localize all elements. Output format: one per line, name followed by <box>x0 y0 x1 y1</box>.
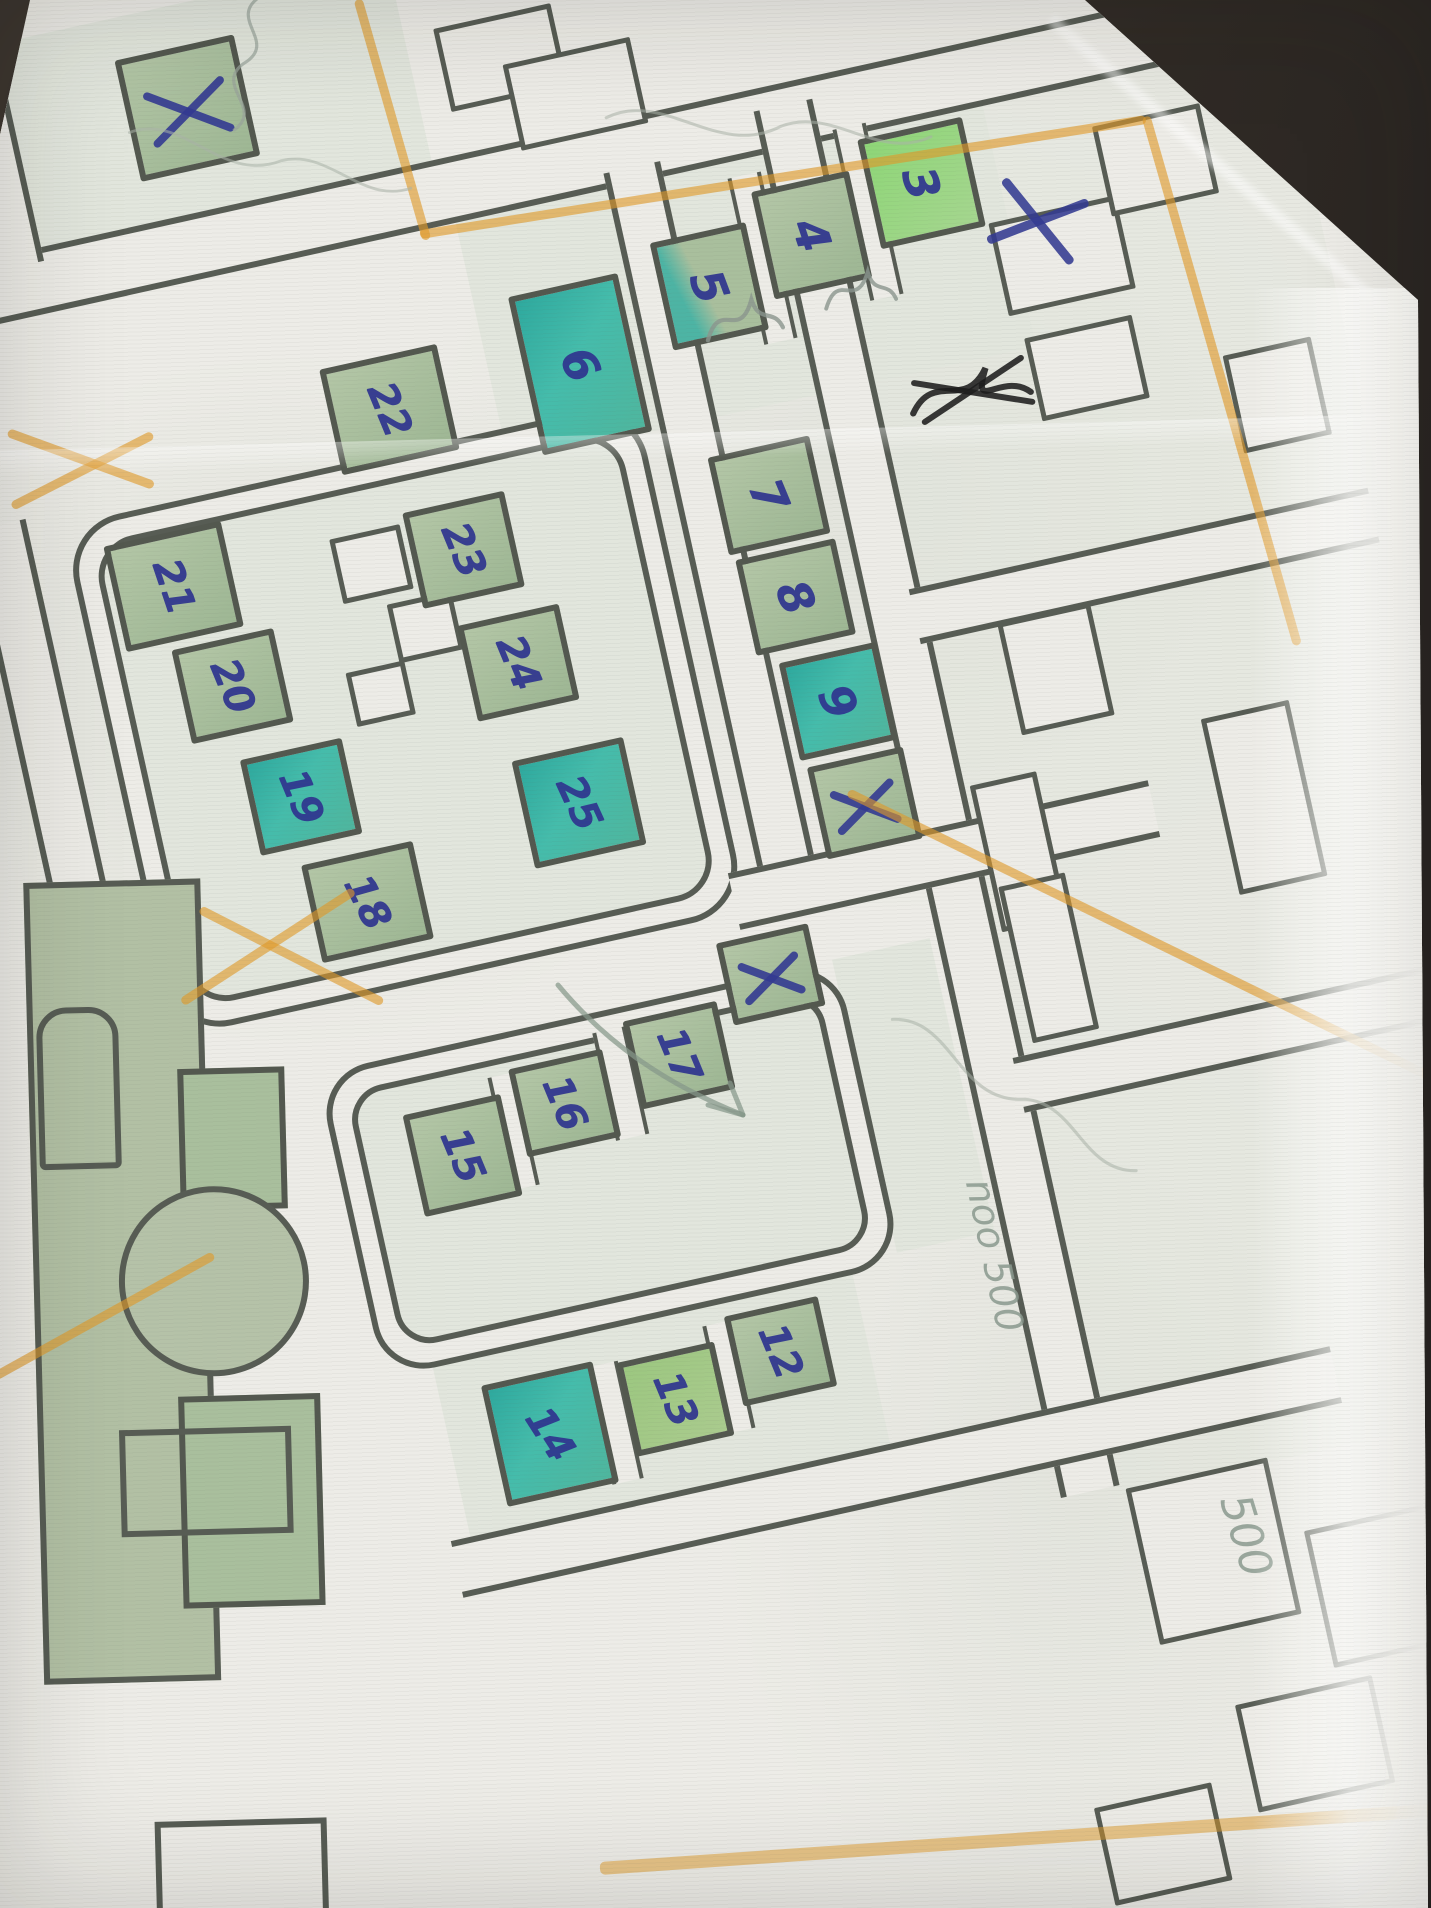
hand-annotations: noo 500500 <box>0 0 1431 1908</box>
pencil-contour-6 <box>596 77 943 197</box>
handwritten-note-0: noo 500 <box>941 1175 1062 1481</box>
green-arrow-4 <box>548 975 778 1150</box>
orange-route-line-3 <box>6 428 155 489</box>
pencil-scribble-2 <box>692 280 793 352</box>
orange-route-line-6 <box>198 905 385 1006</box>
ink-scribble-1 <box>900 336 1046 439</box>
orange-route-line-9 <box>600 1803 1431 1875</box>
paper-sheet: 34567891213141516171819202122232425 noo … <box>0 0 1431 1908</box>
handwritten-note-1: 500 <box>1201 1488 1346 1792</box>
blue-x-mark-floating <box>974 156 1104 279</box>
orange-route-line-2 <box>1142 115 1302 646</box>
photo-of-annotated-map: 34567891213141516171819202122232425 noo … <box>0 0 1431 1908</box>
pencil-contour-8 <box>861 982 1158 1228</box>
orange-route-line-8 <box>0 1251 216 1380</box>
pencil-scribble-3 <box>813 255 905 319</box>
